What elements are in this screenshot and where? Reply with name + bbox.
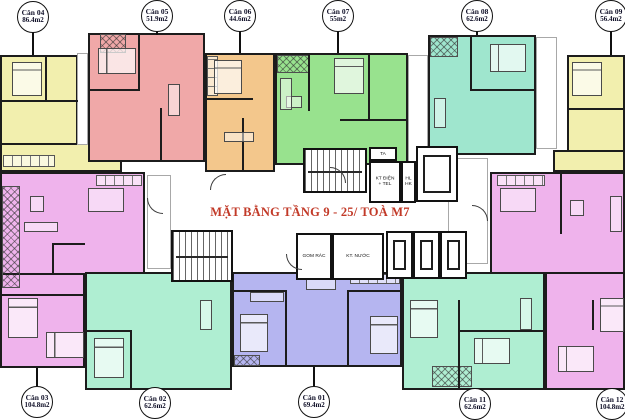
balcony-hatch: [234, 355, 260, 366]
partition-wall: [347, 290, 402, 292]
bed-icon: [12, 62, 42, 96]
light-well: [536, 37, 557, 149]
partition-wall: [88, 89, 140, 91]
water-technical-label: KT. NƯỚC: [339, 239, 377, 273]
partition-wall: [458, 300, 460, 390]
partition-wall: [0, 100, 78, 102]
elevator: [386, 231, 413, 279]
balcony-hatch: [277, 55, 310, 73]
hl-hk-shaft-label: HL HK: [404, 167, 413, 197]
label-leader-line: [36, 368, 38, 386]
elevator-cab-icon: [447, 240, 460, 270]
label-leader-line: [337, 29, 339, 53]
balcony-hatch: [430, 37, 458, 57]
elevator-cab-icon: [393, 240, 406, 270]
bed-icon: [334, 58, 364, 94]
balcony-hatch: [432, 366, 472, 387]
bed-icon: [8, 298, 38, 338]
bed-icon: [490, 44, 526, 72]
unit-area: 55m2: [330, 16, 346, 23]
partition-wall: [368, 53, 370, 121]
sofa-icon: [434, 98, 446, 128]
sofa-icon: [250, 292, 284, 302]
balcony-hatch: [2, 186, 20, 288]
partition-wall: [130, 330, 132, 390]
bed-icon: [98, 48, 136, 74]
bed-icon: [240, 314, 268, 352]
unit-label-can-07: Căn 07 55m2: [322, 0, 354, 32]
elevator: [416, 146, 458, 202]
unit-label-can-11: Căn 11 62.6m2: [459, 388, 491, 420]
unit-label-can-02: Căn 02 62.6m2: [139, 387, 171, 419]
unit-area: 86.4m2: [22, 17, 44, 24]
partition-wall: [340, 119, 408, 121]
partition-wall: [85, 330, 132, 332]
bed-icon: [410, 300, 438, 338]
bed-icon: [94, 338, 124, 378]
unit-area: 104.8m2: [599, 404, 624, 411]
water-technical-room: KT. NƯỚC: [332, 233, 384, 280]
elevator-cab-icon: [423, 155, 451, 193]
sofa-icon: [520, 298, 532, 330]
partition-wall: [592, 300, 594, 330]
elevator: [440, 231, 467, 279]
partition-wall: [205, 98, 253, 100]
partition-wall: [347, 290, 349, 367]
kitchen-counter: [3, 155, 55, 167]
bed-icon: [572, 62, 602, 96]
coffee-table-icon: [570, 200, 584, 216]
sofa-icon: [168, 84, 180, 116]
label-leader-line: [313, 367, 315, 386]
unit-area: 56.4m2: [600, 16, 622, 23]
unit-area: 62.6m2: [144, 403, 166, 410]
light-well: [147, 175, 171, 269]
unit-label-can-08: Căn 08 62.6m2: [461, 0, 493, 32]
sofa-icon: [24, 222, 58, 232]
electric-tel-shaft: KT ĐIỆN + TEL: [369, 161, 401, 203]
dining-table-icon: [88, 188, 124, 212]
floor-plan: TA KT ĐIỆN + TEL HL HK GOM RÁC KT. NƯỚC …: [0, 0, 625, 420]
hl-hk-shaft: HL HK: [401, 161, 416, 203]
partition-wall: [560, 172, 562, 234]
elevator-cab-icon: [420, 240, 433, 270]
partition-wall: [470, 35, 472, 91]
partition-wall: [567, 108, 625, 110]
sofa-icon: [610, 196, 622, 232]
unit-area: 104.8m2: [24, 402, 49, 409]
kitchen-counter: [96, 175, 142, 186]
bed-icon: [600, 298, 624, 332]
sofa-icon: [224, 132, 254, 142]
hk-label: HK: [405, 182, 412, 188]
unit-label-can-05: Căn 05 51.9m2: [141, 0, 173, 32]
partition-wall: [458, 330, 545, 332]
bed-icon: [370, 316, 398, 354]
partition-wall: [160, 108, 162, 162]
electric-tel-shaft-label: KT ĐIỆN + TEL: [374, 167, 396, 197]
bed-icon: [214, 60, 242, 94]
stair-landing-divider: [176, 256, 228, 258]
sofa-icon: [280, 78, 292, 110]
label-leader-line: [32, 32, 34, 55]
plan-title: MẶT BẰNG TẦNG 9 - 25/ TOÀ M7: [205, 205, 415, 220]
label-leader-line: [610, 31, 612, 55]
bed-icon: [46, 332, 84, 358]
kitchen-counter: [497, 175, 545, 186]
unit-label-can-12: Căn 12 104.8m2: [596, 388, 625, 420]
partition-wall: [0, 294, 85, 296]
unit-area: 62.6m2: [466, 16, 488, 23]
bed-icon: [558, 346, 594, 372]
staircase: [171, 230, 233, 282]
label-leader-line: [239, 30, 241, 53]
unit-area: 51.9m2: [146, 16, 168, 23]
partition-wall: [308, 53, 310, 111]
partition-wall: [285, 290, 287, 367]
ta-shaft: TA: [369, 147, 397, 161]
unit-area: 69.4m2: [303, 402, 325, 409]
sofa-icon: [200, 300, 212, 330]
partition-wall: [138, 33, 140, 91]
partition-wall: [52, 243, 54, 275]
coffee-table-icon: [30, 196, 44, 212]
garbage-chute-label: GOM RÁC: [301, 239, 327, 273]
unit-label-can-03: Căn 03 104.8m2: [21, 386, 53, 418]
light-well: [77, 53, 88, 145]
door-arc-icon: [210, 174, 226, 190]
unit-label-can-01: Căn 01 69.4m2: [298, 386, 330, 418]
dining-table-icon: [500, 188, 536, 212]
door-arc-icon: [286, 254, 302, 270]
bed-icon: [474, 338, 510, 364]
elevator: [413, 231, 440, 279]
unit-label-can-04: Căn 04 86.4m2: [17, 1, 49, 33]
partition-wall: [52, 243, 85, 245]
partition-wall: [470, 89, 536, 91]
ta-shaft-label: TA: [373, 150, 392, 158]
unit-label-can-09: Căn 09 56.4m2: [595, 0, 625, 32]
unit-area: 62.6m2: [464, 404, 486, 411]
unit-area: 44.6m2: [229, 16, 251, 23]
apartment-can-09-wing: [553, 150, 625, 172]
partition-wall: [242, 118, 244, 172]
partition-wall: [45, 55, 47, 102]
unit-label-can-06: Căn 06 44.6m2: [224, 0, 256, 32]
